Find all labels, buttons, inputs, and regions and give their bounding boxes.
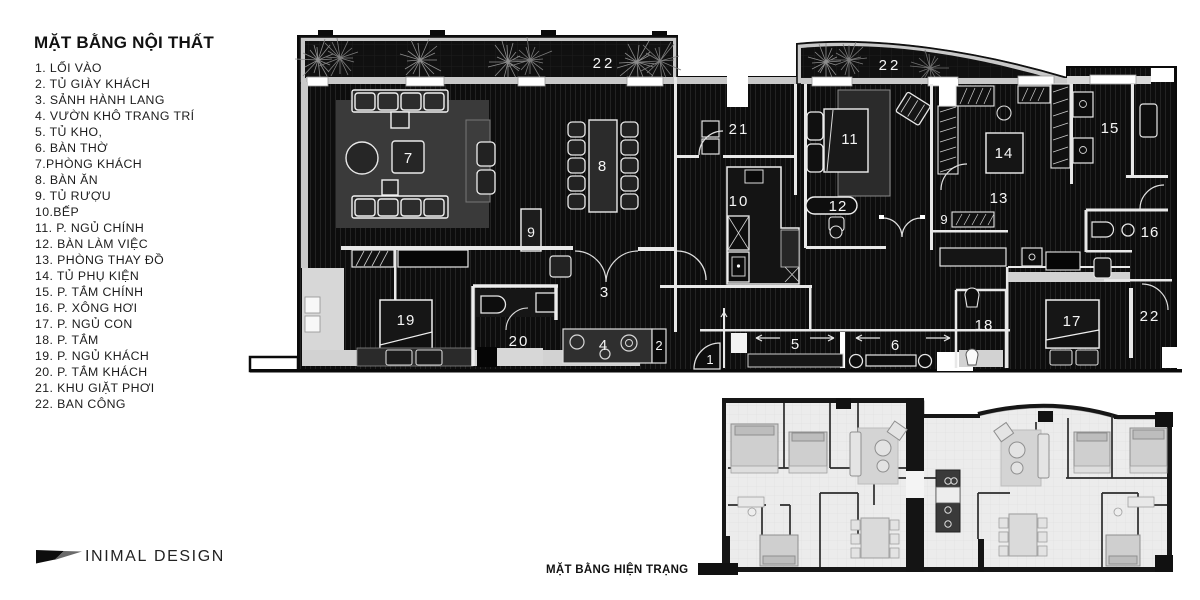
svg-text:17: 17 [1063,313,1082,330]
svg-text:22: 22 [1140,308,1161,325]
svg-text:14: 14 [995,145,1014,162]
svg-text:3: 3 [600,284,608,301]
svg-text:9: 9 [527,224,535,240]
svg-text:4: 4 [599,337,607,354]
svg-text:8: 8 [598,158,606,175]
svg-text:11: 11 [841,131,859,148]
svg-text:7: 7 [404,150,412,167]
svg-text:6: 6 [891,337,899,354]
svg-text:22: 22 [593,55,616,72]
svg-text:9: 9 [940,212,947,227]
svg-text:21: 21 [729,121,750,138]
svg-text:5: 5 [791,336,799,353]
svg-text:22: 22 [879,57,902,74]
svg-text:20: 20 [509,333,530,350]
svg-text:13: 13 [990,190,1009,207]
svg-text:16: 16 [1141,224,1160,241]
svg-text:12: 12 [829,198,848,215]
svg-text:18: 18 [975,317,994,334]
svg-text:19: 19 [397,312,416,329]
svg-text:15: 15 [1101,120,1120,137]
svg-text:10: 10 [729,193,750,210]
svg-text:2: 2 [655,338,662,353]
svg-text:1: 1 [706,352,713,367]
